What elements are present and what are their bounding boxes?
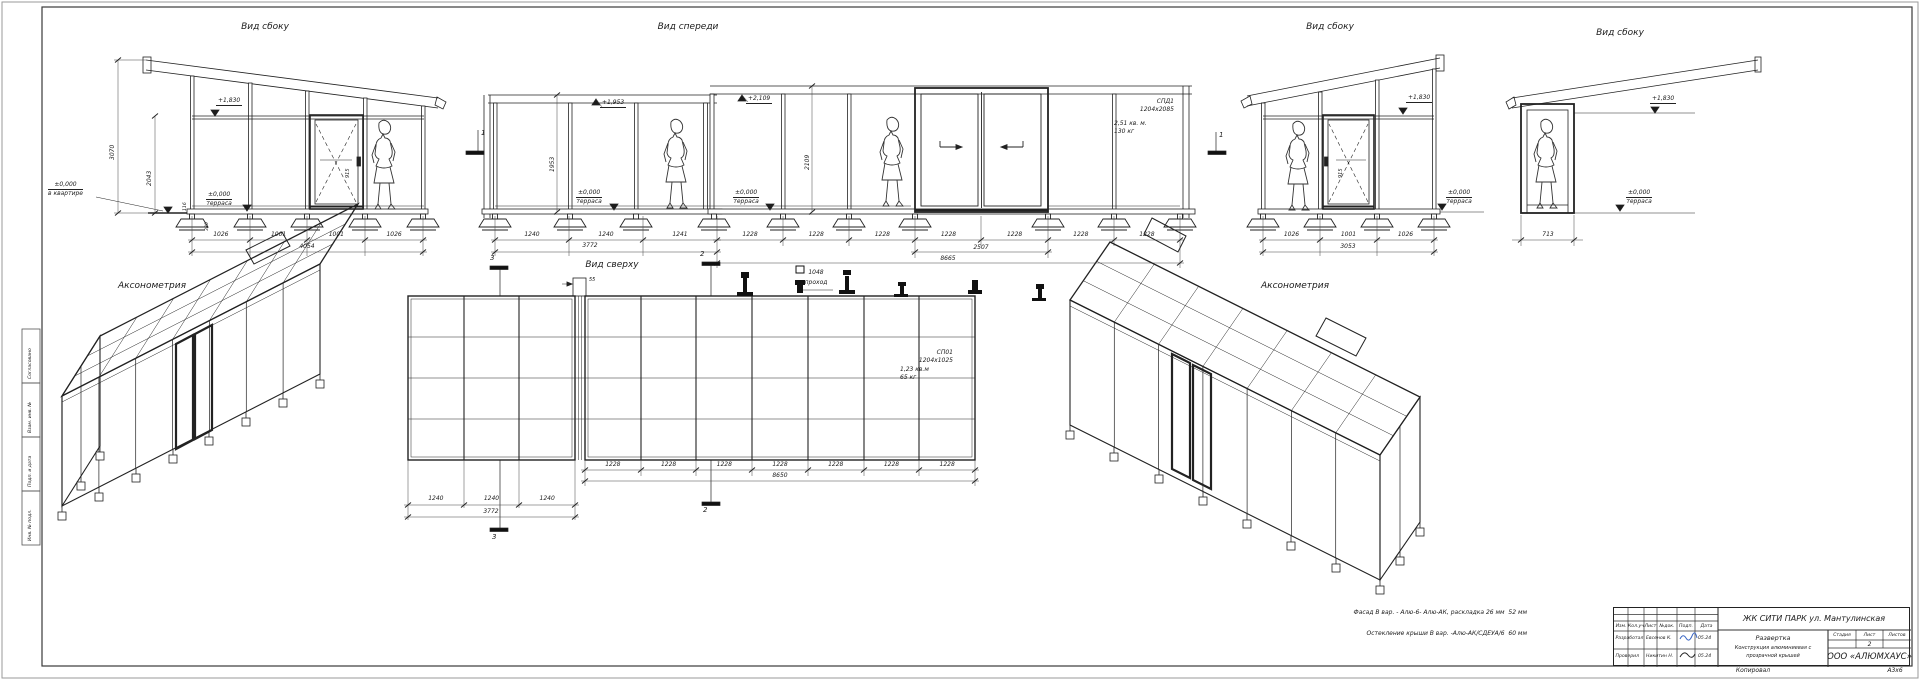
stamp-doc-title: Развертка	[1755, 634, 1790, 642]
stamp-col: Кол.уч	[1628, 624, 1644, 630]
dim-label: 1228	[585, 461, 641, 468]
section-label: 1	[481, 129, 485, 138]
dim-label: 2043	[146, 171, 154, 186]
person-figure	[372, 120, 395, 209]
section-marker-1	[466, 130, 1226, 155]
dim-total: 4054	[299, 243, 314, 251]
dim-label: 2507	[973, 244, 988, 252]
stamp-col: Подп.	[1679, 624, 1693, 630]
axon-door	[1193, 365, 1211, 489]
sliding-door	[915, 88, 1048, 212]
stamp-col: Лист	[1645, 624, 1657, 630]
stamp-role: Проверил	[1616, 654, 1640, 660]
dim-label: 2109	[804, 155, 812, 170]
dim-chain: 124012401240	[408, 495, 575, 502]
dim-label: 1001	[250, 231, 308, 238]
dim-chain: 1228122812281228122812281228	[717, 231, 1180, 238]
elevation-mark: +2,109	[746, 95, 772, 104]
stamp-sheet-label: Лист	[1864, 633, 1876, 639]
dim-label: 1228	[696, 461, 752, 468]
dim-total: 3772	[483, 508, 498, 516]
stamp-doc-sub: прозрачной крышей	[1746, 653, 1800, 659]
person-figure	[1286, 121, 1309, 210]
dim-label: 1953	[549, 157, 557, 172]
dim-label: 1240	[408, 495, 464, 502]
elevation-mark: +1,830	[1650, 95, 1676, 104]
dim-label: 1228	[752, 461, 808, 468]
title-block: Изм. Кол.уч Лист №док. Подп. Дата Разраб…	[1613, 607, 1910, 666]
person-figure	[880, 117, 903, 206]
stamp-col: Изм.	[1616, 624, 1627, 630]
elevation-mark: ±0,000терраса	[576, 189, 602, 206]
dim-label: 713	[1542, 231, 1553, 239]
dim-chain: 102610011026	[1263, 231, 1434, 238]
panel-tag: 1,23 кв.м65 кг	[900, 366, 929, 381]
elevation-mark: +1,830	[1406, 94, 1432, 103]
dim-total: 8650	[772, 472, 787, 480]
dim-label: 1240	[464, 495, 520, 502]
section-label: 3	[492, 533, 496, 542]
axon-door	[1172, 354, 1190, 478]
panel-tag: 2,51 кв. м.130 кг	[1114, 120, 1147, 135]
dim-total: 8665	[940, 255, 955, 263]
copied-label: Копировал	[1736, 667, 1770, 675]
dim-label: 1228	[717, 231, 783, 238]
dim-label: 915	[1338, 168, 1344, 178]
signature-checker	[1680, 653, 1695, 657]
elevation-mark: ±0,000в квартире	[48, 181, 83, 198]
stamp-name: Никитин Н.	[1646, 654, 1673, 660]
axon-right-title: Аксонометрия	[1261, 281, 1329, 292]
elevation-mark: ±0,000терраса	[1446, 189, 1472, 206]
strip-label: Подп. и дата	[28, 456, 34, 487]
plan-title: Вид сверху	[585, 260, 638, 271]
dim-label: 1026	[365, 231, 423, 238]
dim-label: 1228	[849, 231, 915, 238]
dim-label: 116	[183, 202, 189, 211]
elevation-mark: ±0,000терраса	[1626, 189, 1652, 206]
elevation-mark: ±0,000терраса	[206, 191, 232, 208]
stamp-sheets-label: Листов	[1888, 633, 1905, 639]
dim-chain: 1026100110011026	[192, 231, 423, 238]
view-side-left	[96, 57, 446, 256]
person-figure	[1534, 119, 1557, 208]
stamp-company: ООО «АЛЮМХАУС»	[1827, 652, 1912, 663]
dim-label: 1026	[1377, 231, 1434, 238]
elevation-mark: +1,953	[600, 99, 626, 108]
section-marker-2-3	[490, 262, 720, 532]
dim-total: 3772	[582, 242, 597, 250]
note-line: Остекление крыши В вар. -Алю-АК/СДЕУА/6 …	[1240, 630, 1527, 638]
dim-label: 1026	[192, 231, 250, 238]
dim-label: 1001	[1320, 231, 1377, 238]
dim-label: 1228	[915, 231, 981, 238]
stamp-date: 05.24	[1698, 654, 1711, 660]
axon-left-title: Аксонометрия	[118, 281, 186, 292]
panel-tag: СП011204х1025	[898, 349, 953, 364]
view-plan	[404, 262, 979, 532]
stamp-role: Разработал	[1616, 636, 1644, 642]
stamp-col: Дата	[1701, 624, 1713, 630]
dim-label: 1228	[864, 461, 920, 468]
note-line: Фасад В вар. - Алю-6- Алю-АК, раскладка …	[1240, 609, 1527, 617]
strip-label: Взам. инв. №	[28, 402, 34, 433]
door-leaf-symbol	[1323, 115, 1374, 209]
dim-label: 3070	[109, 145, 117, 160]
dim-label: 1228	[1114, 231, 1180, 238]
section-label: 2	[703, 506, 707, 515]
strip-label: Инв. № подл.	[28, 509, 34, 541]
sheet-frame	[2, 2, 1918, 678]
stamp-name: Евсенов К.	[1646, 636, 1672, 642]
axon-left	[58, 204, 358, 520]
dim-label: 1228	[808, 461, 864, 468]
axon-door	[176, 335, 193, 449]
drawing-linework	[0, 0, 1920, 680]
strip-label: Согласовано	[28, 348, 34, 379]
dim-label: 1240	[569, 231, 643, 238]
dim-word: проход	[805, 279, 828, 287]
dim-label: 1240	[519, 495, 575, 502]
dim-label: 1228	[783, 231, 849, 238]
dim-label: 915	[345, 168, 351, 178]
end-door-frame	[1521, 104, 1574, 213]
dim-label: 1240	[495, 231, 569, 238]
view1-title: Вид сбоку	[241, 22, 289, 33]
stamp-stage-label: Стадия	[1833, 633, 1851, 639]
dim-label: 1001	[308, 231, 366, 238]
dim-chain: 124012401241	[495, 231, 717, 238]
dim-label: 1228	[641, 461, 697, 468]
dim-label: 55	[589, 277, 595, 283]
dim-label: 1228	[919, 461, 975, 468]
dim-label: 1026	[1263, 231, 1320, 238]
view4-title: Вид сбоку	[1306, 22, 1354, 33]
dim-chain: 1228122812281228122812281228	[585, 461, 975, 468]
section-label: 1	[1219, 131, 1223, 140]
section-label: 3	[490, 254, 494, 263]
section-label: 2	[700, 250, 704, 259]
dim-label: 1228	[1048, 231, 1114, 238]
view-side-right	[1241, 55, 1484, 256]
axon-right	[1066, 218, 1424, 594]
drawing-sheet: Вид сбоку Вид спереди Вид сбоку Вид сбок…	[0, 0, 1920, 680]
signature-developer	[1680, 633, 1697, 640]
elevation-mark: +1,830	[216, 97, 242, 106]
dim-label: 380	[205, 222, 211, 231]
door-leaf-symbol	[310, 115, 363, 209]
panel-tag: СПД11204х2085	[1112, 98, 1174, 113]
view5-title: Вид сбоку	[1596, 28, 1644, 39]
elevation-mark: ±0,000терраса	[733, 189, 759, 206]
stamp-doc-sub: Конструкция алюминиевая с	[1735, 645, 1811, 651]
person-figure	[664, 119, 687, 208]
dim-label: 1048	[808, 269, 823, 277]
front-title: Вид спереди	[658, 22, 719, 33]
stamp-date: 05.24	[1698, 636, 1711, 642]
format-label: А3х6	[1887, 667, 1902, 675]
dim-label: 1241	[643, 231, 717, 238]
stamp-sheet-num: 2	[1868, 641, 1872, 649]
dim-total: 3053	[1340, 243, 1355, 251]
stamp-project: ЖК СИТИ ПАРК ул. Мантулинская	[1743, 614, 1885, 624]
stamp-col: №док.	[1660, 624, 1675, 630]
roof-panel	[1316, 318, 1366, 356]
view-end	[1506, 57, 1761, 246]
dim-label: 1228	[982, 231, 1048, 238]
